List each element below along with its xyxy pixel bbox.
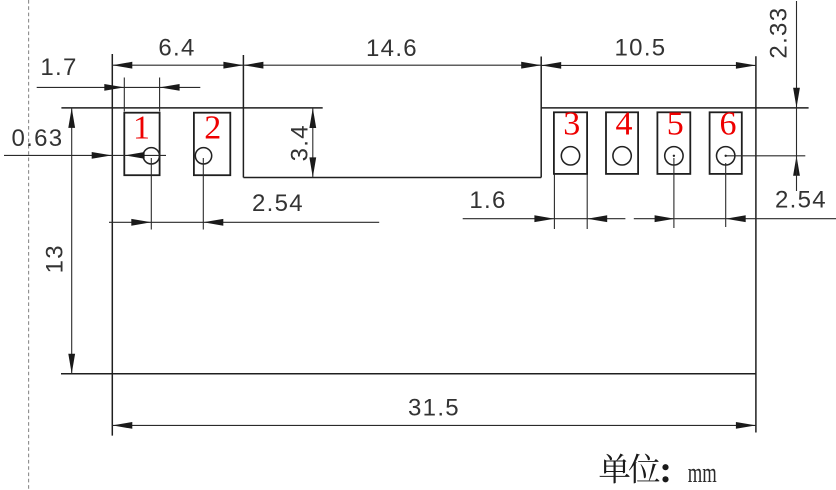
svg-text:0.63: 0.63 (12, 125, 64, 152)
svg-text:6.4: 6.4 (158, 35, 195, 62)
svg-text:3: 3 (563, 106, 580, 143)
svg-text:3.4: 3.4 (287, 124, 314, 161)
svg-text:31.5: 31.5 (408, 395, 460, 422)
svg-text:10.5: 10.5 (615, 35, 667, 62)
svg-text:4: 4 (616, 106, 633, 143)
svg-text:2: 2 (204, 110, 221, 147)
svg-text:5: 5 (667, 106, 684, 143)
svg-text:6: 6 (720, 106, 737, 143)
svg-text:1.7: 1.7 (40, 54, 77, 81)
svg-text:1.6: 1.6 (469, 187, 506, 214)
svg-text:2.33: 2.33 (766, 7, 793, 59)
svg-text:14.6: 14.6 (366, 35, 418, 62)
svg-text:1: 1 (133, 110, 150, 147)
svg-text:mm: mm (688, 457, 717, 489)
svg-text:13: 13 (41, 244, 68, 273)
svg-text:2.54: 2.54 (252, 190, 304, 217)
svg-text:2.54: 2.54 (775, 187, 827, 214)
